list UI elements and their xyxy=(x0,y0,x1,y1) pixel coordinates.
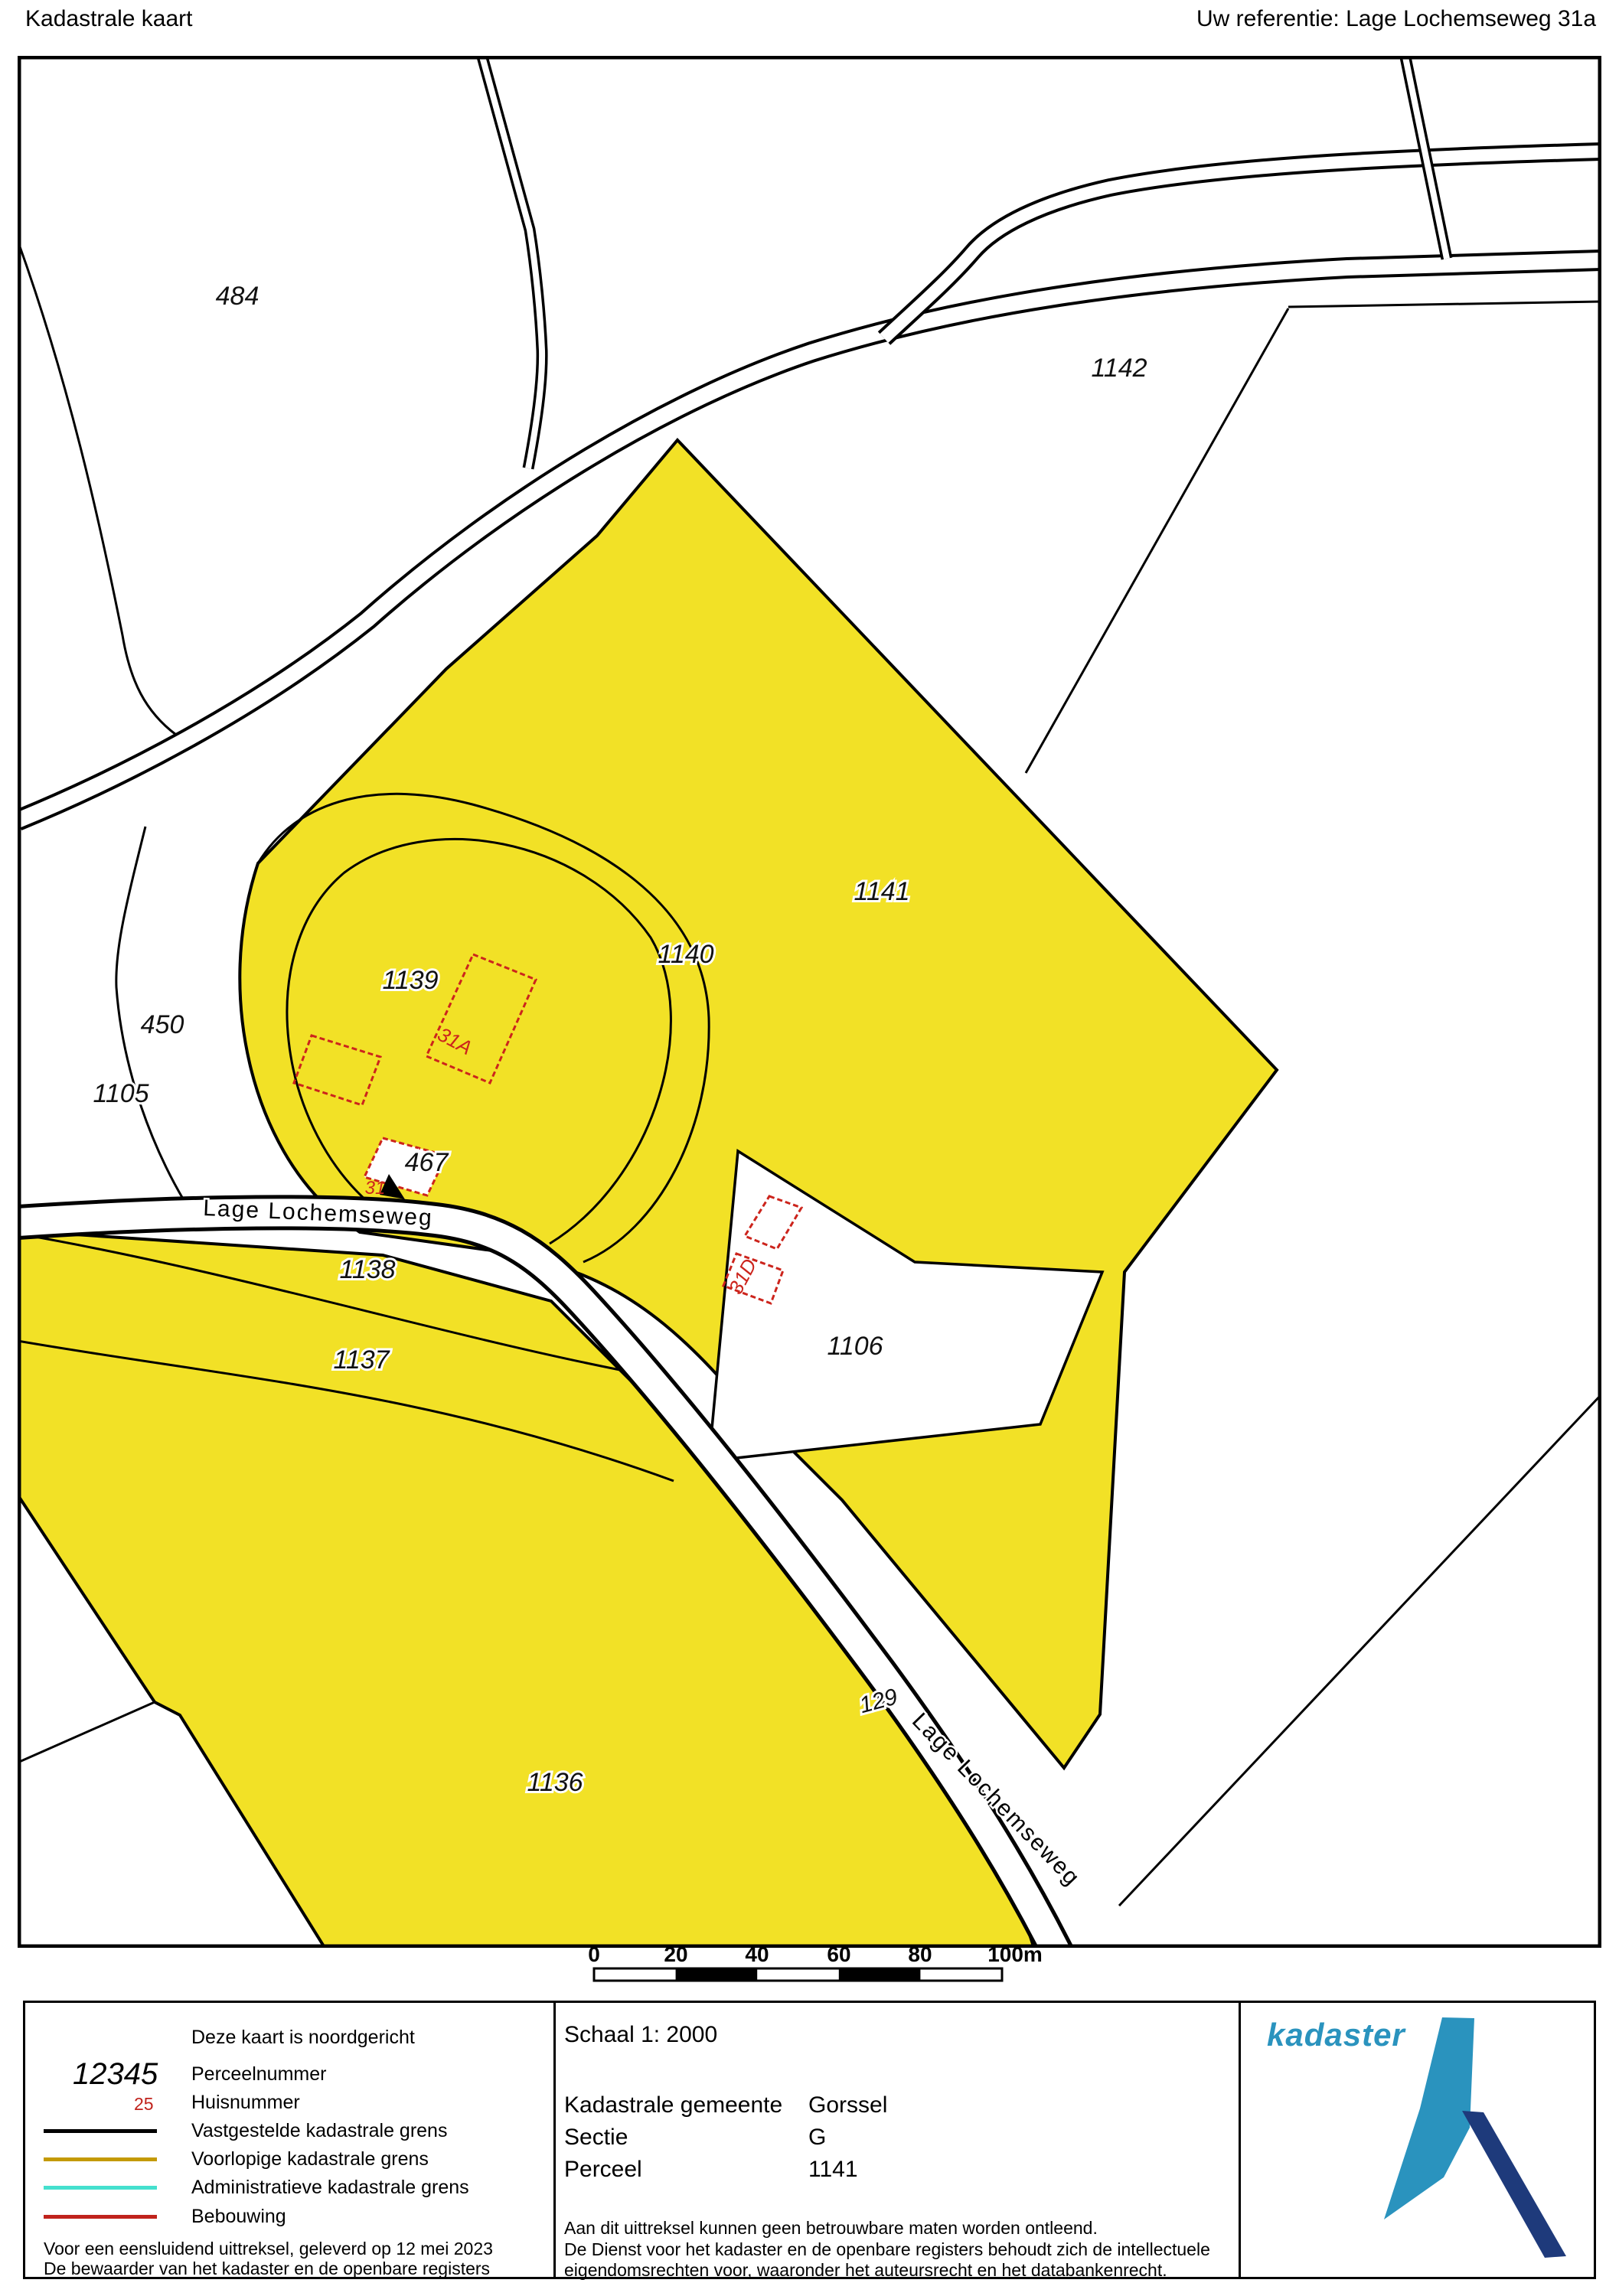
parcel-label-1105: 1105 xyxy=(93,1079,149,1108)
scale-label-0: 0 xyxy=(588,1942,600,1967)
legend-footer-line2: De bewaarder van het kadaster en de open… xyxy=(44,2258,490,2279)
scale-label-80: 80 xyxy=(908,1942,932,1967)
reference-text: Uw referentie: Lage Lochemseweg 31a xyxy=(1196,6,1596,32)
scale-label-40: 40 xyxy=(745,1942,769,1967)
page-title: Kadastrale kaart xyxy=(25,6,192,32)
scale-label-20: 20 xyxy=(664,1942,687,1967)
parcel-label-1142: 1142 xyxy=(1091,354,1147,383)
scale-bar-seg-60-80 xyxy=(839,1968,921,1981)
map-canvas: 31A 31 31D 484 1142 1141 1140 1139 450 1… xyxy=(18,56,1601,1948)
legend-vastgesteld-label: Vastgestelde kadastrale grens xyxy=(191,2120,447,2142)
scale-bar-seg-20-40 xyxy=(676,1968,758,1981)
legend-parcelnumber-symbol: 12345 xyxy=(73,2057,158,2092)
disclaimer-line2: De Dienst voor het kadaster en de openba… xyxy=(564,2239,1210,2260)
scale-label-60: 60 xyxy=(827,1942,850,1967)
parcel-label-484: 484 xyxy=(216,282,259,311)
cadastral-map: 31A 31 31D 484 1142 1141 1140 1139 450 1… xyxy=(18,56,1601,1948)
disclaimer-line1: Aan dit uittreksel kunnen geen betrouwba… xyxy=(564,2218,1098,2239)
sectie-label: Sectie xyxy=(564,2125,628,2151)
sectie-value: G xyxy=(808,2125,826,2151)
house-number-31: 31 xyxy=(365,1178,386,1199)
perceel-label: Perceel xyxy=(564,2157,642,2183)
panel-divider-right xyxy=(1239,2001,1241,2279)
parcel-label-1141: 1141 xyxy=(854,877,909,906)
legend-administratief-label: Administratieve kadastrale grens xyxy=(191,2177,469,2199)
legend-housenumber-symbol: 25 xyxy=(134,2094,154,2115)
parcel-label-1106: 1106 xyxy=(827,1332,883,1361)
parcel-label-450: 450 xyxy=(141,1010,184,1039)
legend-housenumber-label: Huisnummer xyxy=(191,2092,300,2114)
legend-line-voorlopig xyxy=(44,2157,157,2161)
legend-line-vastgesteld xyxy=(44,2129,157,2133)
legend-line-administratief xyxy=(44,2186,157,2190)
scale-bar-graphic xyxy=(589,1964,1018,1987)
logo-pen-icon xyxy=(1384,2017,1474,2219)
parcel-label-1138: 1138 xyxy=(339,1255,395,1284)
kadaster-logo-mark xyxy=(1370,2005,1585,2265)
legend-parcelnumber-label: Perceelnummer xyxy=(191,2063,326,2086)
perceel-value: 1141 xyxy=(808,2157,858,2183)
parcel-label-1140: 1140 xyxy=(658,940,713,969)
legend-footer-line1: Voor een eensluidend uittreksel, gelever… xyxy=(44,2239,493,2259)
parcel-label-467: 467 xyxy=(405,1148,449,1177)
legend-line-bebouwing xyxy=(44,2215,157,2219)
scale-label-100m: 100m xyxy=(987,1942,1043,1967)
scale-text: Schaal 1: 2000 xyxy=(564,2022,717,2048)
disclaimer-line3: eigendomsrechten voor, waaronder het aut… xyxy=(564,2260,1167,2281)
legend-bebouwing-label: Bebouwing xyxy=(191,2206,286,2228)
scale-bar-frame xyxy=(594,1968,1002,1981)
north-note: Deze kaart is noordgericht xyxy=(191,2027,415,2049)
gemeente-label: Kadastrale gemeente xyxy=(564,2092,782,2118)
panel-divider-left xyxy=(553,2001,556,2279)
parcel-label-1136: 1136 xyxy=(527,1768,583,1797)
parcel-label-1139: 1139 xyxy=(382,966,438,995)
logo-stroke-icon xyxy=(1462,2111,1566,2258)
parcel-label-1137: 1137 xyxy=(333,1345,390,1375)
gemeente-value: Gorssel xyxy=(808,2092,887,2118)
legend-voorlopig-label: Voorlopige kadastrale grens xyxy=(191,2148,429,2170)
